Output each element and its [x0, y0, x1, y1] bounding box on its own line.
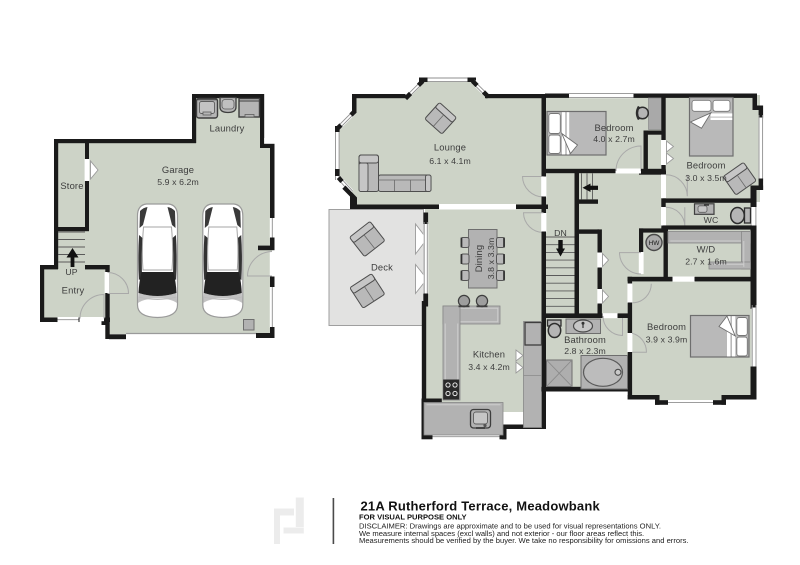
- svg-text:6.1 x 4.1m: 6.1 x 4.1m: [429, 156, 471, 166]
- svg-text:Bedroom: Bedroom: [686, 160, 725, 171]
- svg-text:3.0 x 3.5m: 3.0 x 3.5m: [685, 173, 727, 183]
- svg-text:Bedroom: Bedroom: [594, 122, 633, 133]
- svg-text:21A Rutherford Terrace, Meadow: 21A Rutherford Terrace, Meadowbank: [361, 499, 601, 514]
- svg-text:W/D: W/D: [697, 244, 716, 255]
- svg-text:3.9 x 3.9m: 3.9 x 3.9m: [646, 335, 688, 345]
- svg-text:4.0 x 2.7m: 4.0 x 2.7m: [593, 134, 635, 144]
- svg-text:Deck: Deck: [371, 262, 393, 273]
- svg-text:Store: Store: [60, 180, 83, 191]
- svg-text:Garage: Garage: [162, 164, 194, 175]
- svg-text:Measurements should be verifie: Measurements should be verified by the b…: [359, 536, 689, 545]
- svg-text:2.8 x 2.3m: 2.8 x 2.3m: [564, 346, 606, 356]
- svg-text:FOR VISUAL PURPOSE ONLY: FOR VISUAL PURPOSE ONLY: [359, 513, 467, 522]
- svg-text:HW: HW: [649, 240, 661, 247]
- svg-text:WC: WC: [704, 215, 719, 225]
- svg-text:Laundry: Laundry: [210, 123, 245, 134]
- svg-text:3.8 x 3.3m: 3.8 x 3.3m: [486, 238, 496, 280]
- svg-text:UP: UP: [65, 267, 77, 277]
- svg-text:2.7 x 1.6m: 2.7 x 1.6m: [685, 257, 727, 267]
- svg-text:Entry: Entry: [62, 285, 85, 296]
- svg-text:Bathroom: Bathroom: [564, 334, 606, 345]
- svg-text:3.4 x 4.2m: 3.4 x 4.2m: [468, 362, 510, 372]
- svg-text:DN: DN: [554, 228, 567, 238]
- svg-text:5.9 x 6.2m: 5.9 x 6.2m: [157, 177, 199, 187]
- svg-text:Dining: Dining: [473, 245, 484, 272]
- svg-text:Kitchen: Kitchen: [473, 349, 505, 360]
- svg-text:Lounge: Lounge: [434, 142, 466, 153]
- svg-text:Bedroom: Bedroom: [647, 321, 686, 332]
